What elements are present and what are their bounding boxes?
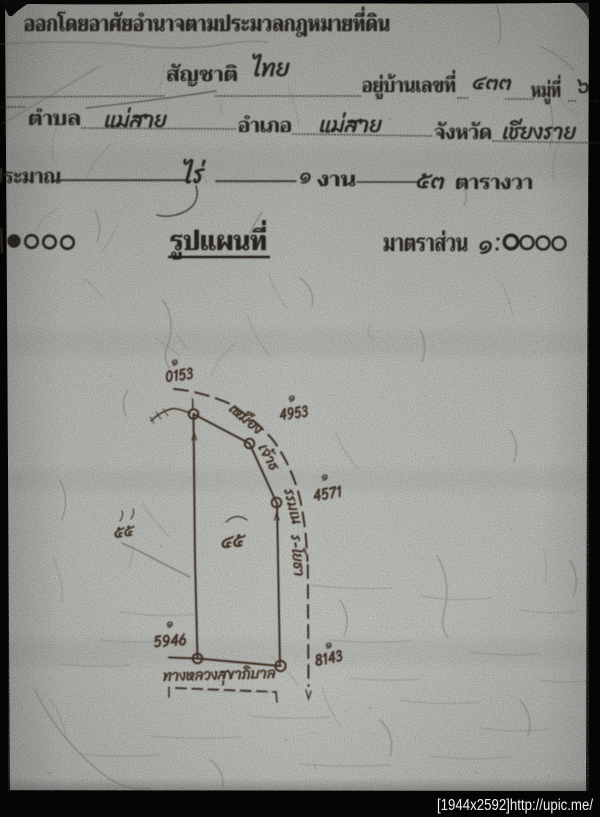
svg-text:[1944x2592]http://upic.me/: [1944x2592]http://upic.me/ — [437, 797, 594, 814]
